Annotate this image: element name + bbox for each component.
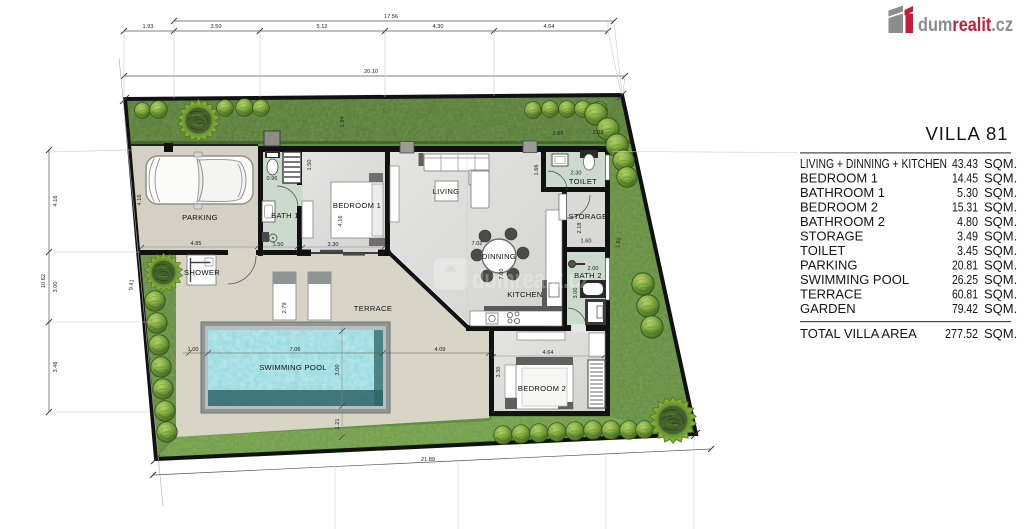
svg-text:TOILET: TOILET: [569, 177, 597, 186]
svg-text:4.16: 4.16: [137, 195, 143, 206]
svg-text:PARKING: PARKING: [182, 213, 218, 222]
svg-text:KITCHEN: KITCHEN: [507, 290, 542, 299]
svg-text:SQM.: SQM.: [984, 326, 1017, 341]
svg-text:dumrealit.cz: dumrealit.cz: [918, 15, 1013, 36]
svg-text:SQM.: SQM.: [984, 200, 1017, 215]
svg-text:1.50: 1.50: [273, 242, 284, 248]
svg-text:7.02: 7.02: [472, 241, 483, 247]
svg-text:17.56: 17.56: [384, 14, 398, 20]
svg-text:9.41: 9.41: [129, 279, 136, 290]
svg-text:1.00: 1.00: [188, 347, 199, 353]
svg-text:4.80: 4.80: [957, 214, 978, 229]
svg-text:SWIMMING POOL: SWIMMING POOL: [259, 363, 327, 372]
svg-text:15.31: 15.31: [952, 200, 978, 215]
svg-text:3.50: 3.50: [211, 24, 222, 30]
svg-text:BATH 2: BATH 2: [574, 271, 602, 280]
svg-text:TOTAL VILLA AREA: TOTAL VILLA AREA: [800, 326, 917, 341]
svg-text:4.64: 4.64: [544, 24, 555, 30]
svg-text:4.64: 4.64: [543, 350, 554, 356]
svg-text:21.89: 21.89: [421, 457, 435, 463]
svg-text:SQM.: SQM.: [984, 156, 1017, 171]
svg-text:BATHROOM 1: BATHROOM 1: [800, 185, 885, 200]
svg-text:LIVING + DINNING + KITCHEN: LIVING + DINNING + KITCHEN: [800, 156, 947, 171]
svg-text:7.06: 7.06: [290, 347, 301, 353]
svg-text:SQM.: SQM.: [984, 243, 1017, 258]
svg-text:LIVING: LIVING: [433, 187, 460, 196]
svg-text:SQM.: SQM.: [984, 272, 1017, 287]
svg-text:4.09: 4.09: [435, 347, 446, 353]
svg-text:2.65: 2.65: [553, 131, 564, 137]
svg-text:BATH 1: BATH 1: [271, 211, 299, 220]
svg-text:60.81: 60.81: [952, 287, 978, 302]
svg-text:BEDROOM 2: BEDROOM 2: [800, 200, 878, 215]
svg-text:3.30: 3.30: [328, 242, 339, 248]
svg-text:5.30: 5.30: [957, 185, 978, 200]
svg-text:2.30: 2.30: [571, 171, 582, 177]
svg-text:BEDROOM 1: BEDROOM 1: [800, 171, 878, 186]
svg-text:SQM.: SQM.: [984, 185, 1017, 200]
svg-text:1.94: 1.94: [340, 117, 346, 128]
svg-text:TERRACE: TERRACE: [800, 287, 862, 302]
svg-text:3.00: 3.00: [335, 365, 341, 376]
svg-text:2.00: 2.00: [588, 266, 599, 272]
svg-text:SQM.: SQM.: [984, 258, 1017, 273]
svg-text:14.45: 14.45: [952, 171, 978, 186]
svg-text:2.03: 2.03: [593, 130, 604, 136]
svg-text:26.25: 26.25: [952, 272, 978, 287]
svg-text:4.85: 4.85: [191, 241, 202, 247]
svg-text:0.96: 0.96: [267, 176, 278, 182]
svg-text:7.00: 7.00: [499, 269, 505, 280]
svg-text:SQM.: SQM.: [984, 287, 1017, 302]
svg-text:5.12: 5.12: [317, 24, 328, 30]
svg-text:20.81: 20.81: [952, 258, 978, 273]
svg-text:STORAGE: STORAGE: [800, 229, 864, 244]
svg-text:SWIMMING POOL: SWIMMING POOL: [800, 272, 909, 287]
svg-text:PARKING: PARKING: [800, 258, 858, 273]
svg-text:79.42: 79.42: [952, 301, 978, 316]
svg-text:3.00: 3.00: [573, 288, 579, 299]
svg-text:DINNING: DINNING: [482, 252, 516, 261]
svg-text:3.45: 3.45: [957, 243, 978, 258]
svg-text:1.50: 1.50: [307, 160, 313, 171]
svg-text:3.46: 3.46: [53, 362, 59, 373]
svg-text:4.30: 4.30: [433, 24, 444, 30]
svg-text:BATHROOM 2: BATHROOM 2: [800, 214, 885, 229]
svg-text:SQM.: SQM.: [984, 229, 1017, 244]
svg-text:SHOWER: SHOWER: [184, 268, 220, 277]
svg-text:SQM.: SQM.: [984, 171, 1017, 186]
svg-text:2.79: 2.79: [282, 303, 288, 314]
svg-text:SQM.: SQM.: [984, 214, 1017, 229]
svg-text:4.16: 4.16: [53, 196, 59, 207]
svg-text:3.49: 3.49: [957, 229, 978, 244]
svg-text:1.60: 1.60: [581, 239, 592, 245]
svg-text:10.62: 10.62: [41, 274, 47, 288]
svg-text:GARDEN: GARDEN: [800, 301, 856, 316]
svg-text:277.52: 277.52: [945, 326, 978, 341]
svg-text:43.43: 43.43: [952, 156, 978, 171]
svg-text:1.66: 1.66: [534, 165, 540, 176]
svg-text:1.93: 1.93: [143, 24, 154, 30]
svg-text:TOILET: TOILET: [800, 243, 845, 258]
svg-text:4.16: 4.16: [338, 216, 344, 227]
svg-text:1.21: 1.21: [335, 419, 341, 430]
svg-text:VILLA 81: VILLA 81: [925, 123, 1008, 144]
svg-text:TERRACE: TERRACE: [354, 304, 392, 313]
svg-text:STORAGE: STORAGE: [568, 212, 607, 221]
svg-text:3.30: 3.30: [496, 367, 502, 378]
svg-text:BEDROOM 2: BEDROOM 2: [518, 384, 566, 393]
svg-text:BEDROOM 1: BEDROOM 1: [333, 201, 381, 210]
svg-text:20.10: 20.10: [364, 69, 378, 75]
svg-text:2.18: 2.18: [577, 223, 583, 234]
svg-text:3.00: 3.00: [53, 282, 59, 293]
svg-text:SQM.: SQM.: [984, 301, 1017, 316]
